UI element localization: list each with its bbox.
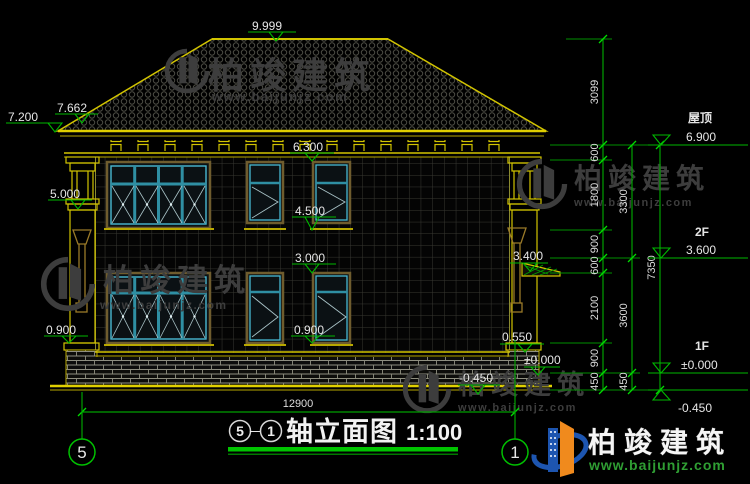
brand-building-orange [560,421,574,477]
watermark-site: www.baijunjz.com [99,298,228,312]
brand-name: 柏竣建筑 [588,426,732,458]
level-f1-sill-mid: 0.900 [294,323,324,337]
axis-number: 1 [510,443,519,462]
dim-label: 450 [589,372,601,390]
watermark-site: www.baijunjz.com [211,89,348,104]
drawing-title: 5 － 1 轴立面图 1:100 [228,416,462,455]
brand-building-blue [548,428,558,472]
axis-left: 5 [69,392,95,465]
awning [522,263,560,276]
extension-lines [550,39,670,390]
f1-label: 1F [695,339,709,353]
chain-lines [603,39,660,390]
watermark-bottom: 柏竣建筑 www.baijunjz.com [405,367,590,414]
level-f1-sill-left: 0.900 [46,323,76,337]
width-dim: 12900 [283,398,314,410]
dim-label: 900 [589,349,601,367]
f1-level: ±0.000 [681,358,718,372]
f2-level: 3.600 [686,243,716,257]
dim-label: 600 [589,143,601,161]
f2-label: 2F [695,225,709,239]
brand-logo: 柏竣建筑 www.baijunjz.com [530,421,732,477]
window-1f-narrow-a [247,273,283,343]
window-2f-main [107,162,210,228]
plinth [95,352,510,386]
watermark-text: 柏竣建筑 [103,263,251,298]
dim-label: 900 [589,235,601,253]
dimension-panel: 3099 600 1800 900 600 2100 900 450 3300 … [550,35,748,415]
title-axis-a: 5 [236,423,244,439]
watermark-left: 柏竣建筑 www.baijunjz.com [44,260,251,312]
dim-label: 3600 [618,303,630,327]
dim-label: 600 [589,256,601,274]
roof-label: 屋顶 [688,111,712,125]
level-f1-head: 3.000 [295,251,325,265]
level-plinth: 0.550 [502,330,532,344]
ground-level: -0.450 [678,401,712,415]
level-soffit: 6.300 [293,140,323,154]
dim-label: 2100 [589,296,601,320]
level-roof-upper: 7.662 [57,101,87,115]
level-column-band: 5.000 [50,187,80,201]
title-underline [228,447,458,452]
level-ground-near: -0.450 [459,371,493,385]
roof-level: 6.900 [686,130,716,144]
dim-label: 7350 [646,255,658,279]
chain-outer-labels: 7350 [646,255,658,279]
window-2f-narrow-a [247,162,283,223]
title-underline-thin [228,454,458,456]
level-awning: 3.400 [513,249,543,263]
watermark-right: 柏竣建筑 www.baijunjz.com [519,161,710,209]
dim-label: 3300 [618,189,630,213]
title-scale: 1:100 [406,420,462,445]
dim-label: 1800 [589,183,601,207]
watermark-logo-icon [519,161,564,206]
chain-mid-labels: 3300 3600 450 [618,189,630,390]
level-roof-eave: 7.200 [8,110,38,124]
bottom-dimension: 12900 [78,398,519,416]
level-zero-near: ±0.000 [524,353,561,367]
elevation-drawing: 柏竣建筑 www.baijunjz.com 柏竣建筑 www.baijunjz.… [0,0,750,484]
title-axis-b: 1 [267,423,275,439]
title-text: 轴立面图 [286,416,398,447]
chain-inner-labels: 3099 600 1800 900 600 2100 900 450 [589,80,601,391]
level-ridge: 9.999 [252,19,282,33]
brand-site: www.baijunjz.com [588,457,726,473]
axis-number: 5 [77,443,86,462]
dim-label: 3099 [589,80,601,104]
level-f2-sill: 4.500 [295,204,325,218]
pedestal-left [66,350,97,386]
dim-label: 450 [618,372,630,390]
pilaster-left [64,157,99,350]
